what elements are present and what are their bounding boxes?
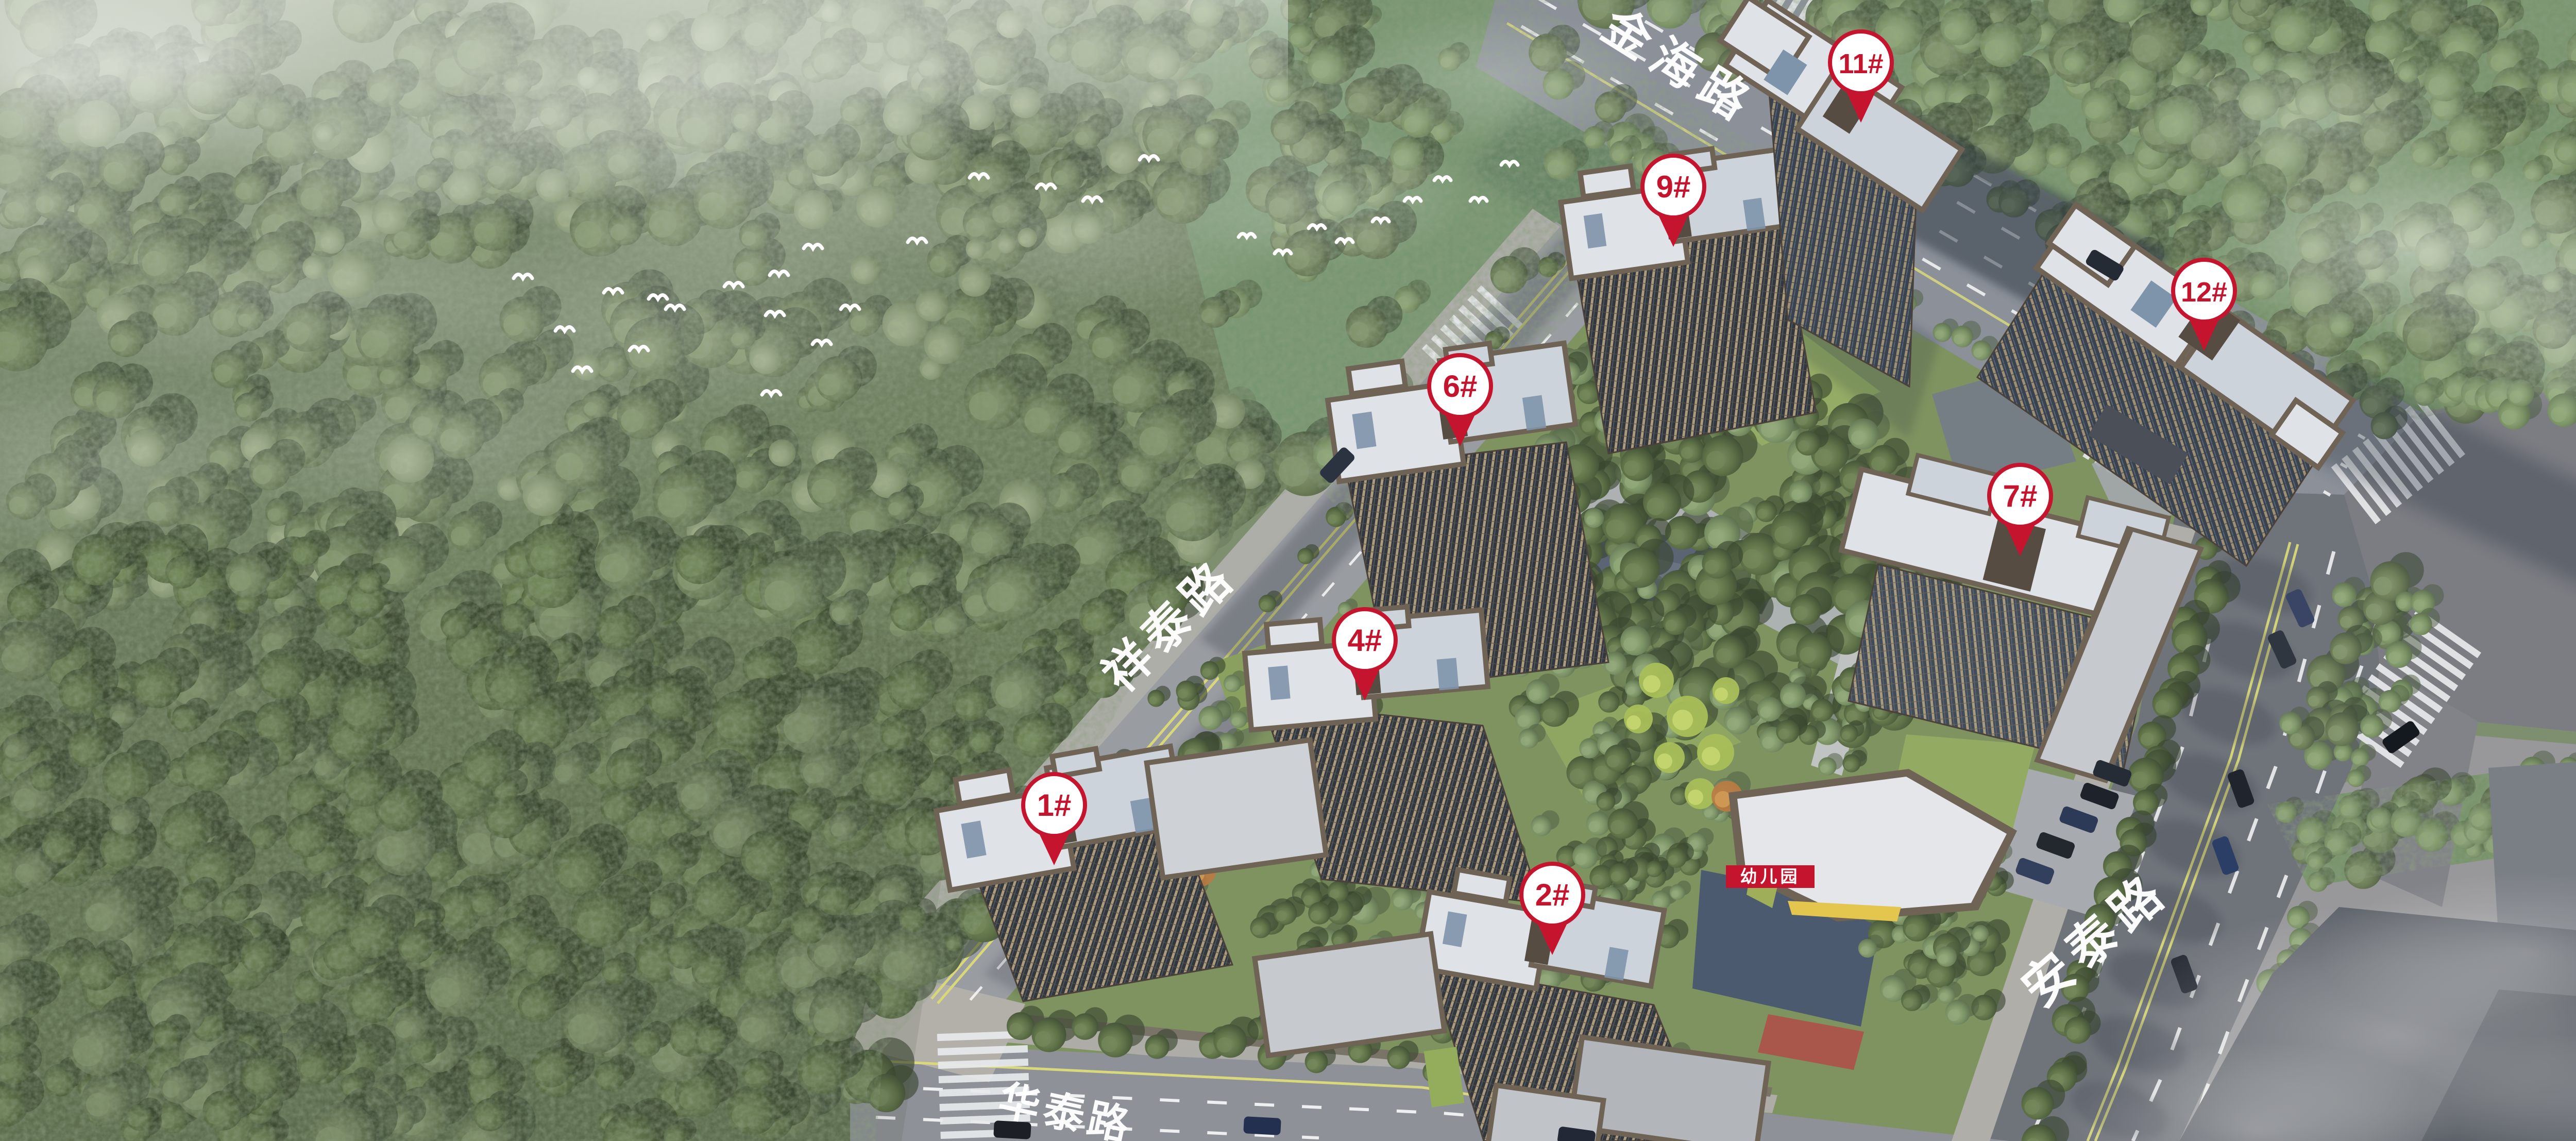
svg-text:1#: 1# xyxy=(1037,788,1072,823)
svg-text:12#: 12# xyxy=(2181,277,2227,308)
svg-text:6#: 6# xyxy=(1443,369,1478,404)
svg-text:9#: 9# xyxy=(1656,170,1691,204)
svg-text:7#: 7# xyxy=(2003,479,2038,513)
svg-text:11#: 11# xyxy=(1838,48,1883,79)
svg-text:4#: 4# xyxy=(1348,623,1382,658)
svg-text:2#: 2# xyxy=(1535,878,1570,912)
svg-text:幼儿园: 幼儿园 xyxy=(1740,867,1801,886)
